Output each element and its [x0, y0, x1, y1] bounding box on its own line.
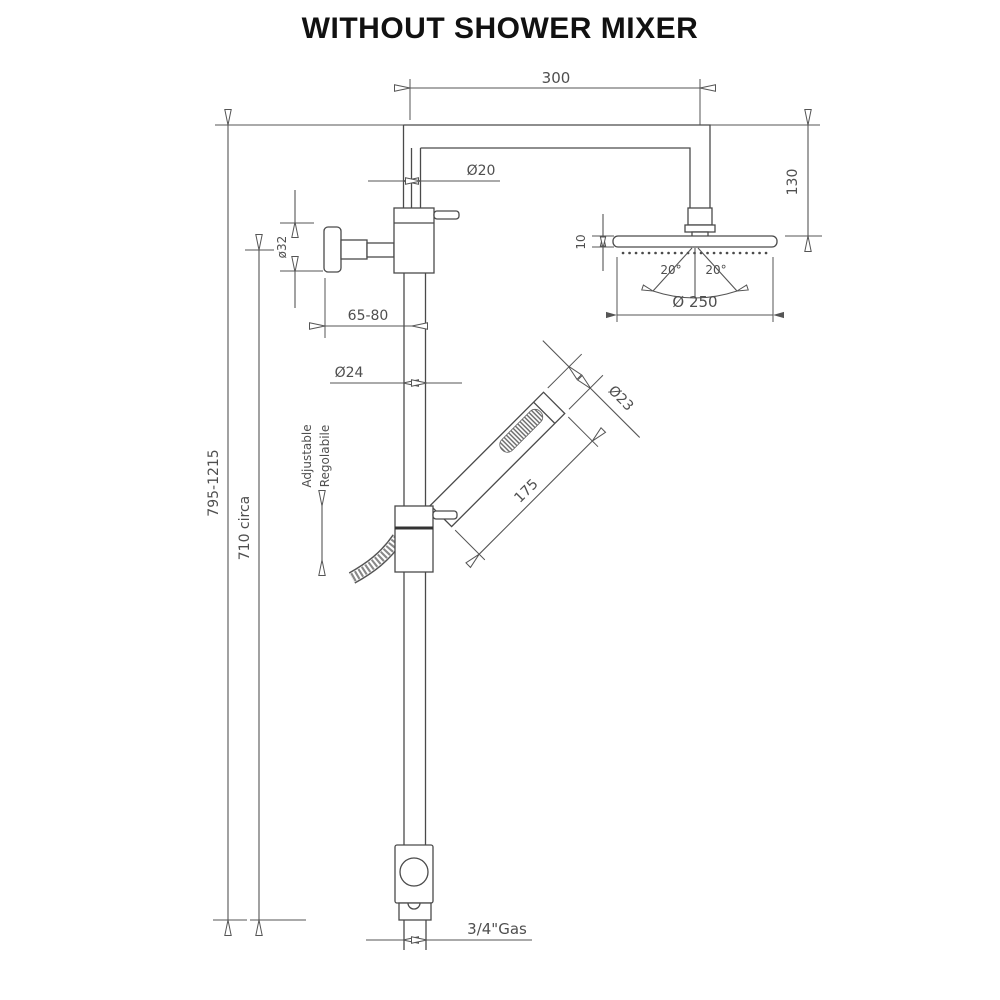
connection-nut: [399, 903, 431, 920]
hand-shower: Ø23 175: [404, 325, 655, 576]
riser-diameter-label: Ø20: [467, 163, 496, 179]
dim-riser-diameter: Ø20: [368, 163, 500, 181]
slide-bracket: [395, 506, 457, 572]
dim-head-drop: 130: [785, 125, 822, 236]
spray-angle-right-label: 20°: [705, 263, 726, 277]
dim-head-thickness: 10: [574, 214, 614, 271]
dim-handset-diameter: Ø23: [522, 325, 656, 459]
dim-rail-height: 710 circa: [237, 250, 306, 920]
technical-drawing-page: WITHOUT SHOWER MIXER: [0, 0, 1000, 1000]
shower-arm: [404, 125, 711, 210]
diverter-lever: [434, 211, 459, 219]
wall-distance-label: 65-80: [348, 308, 389, 324]
gas-connection-label: 3/4"Gas: [467, 920, 527, 938]
arm-length-label: 300: [542, 69, 571, 87]
total-height-label: 795-1215: [206, 449, 222, 516]
shutoff-valve: [395, 845, 433, 920]
shower-column-diagram: 20° 20°: [0, 0, 1000, 1000]
dim-gas-connection: 3/4"Gas: [366, 920, 532, 940]
wall-bracket: [324, 227, 394, 272]
dim-rail-diameter: Ø24: [330, 365, 462, 383]
shower-hose: [352, 538, 398, 578]
riser-pipe: [404, 125, 421, 208]
dim-arm-length: 300: [410, 69, 700, 125]
inlet-pipe: [404, 920, 426, 950]
head-thickness-label: 10: [574, 234, 588, 249]
adjustable-it-label: Regolabile: [318, 425, 332, 488]
handset-diameter-label: Ø23: [605, 383, 637, 415]
rail-height-label: 710 circa: [237, 496, 253, 560]
spray-angle-left-label: 20°: [660, 263, 681, 277]
handset-length-label: 175: [511, 476, 541, 506]
dim-bracket-diameter: ø32: [275, 190, 323, 308]
dim-wall-distance: 65-80: [325, 278, 412, 338]
spray-fan: 20° 20°: [653, 248, 737, 298]
bracket-diameter-label: ø32: [275, 236, 289, 259]
supply-housing: [394, 208, 459, 273]
head-drop-label: 130: [785, 169, 801, 196]
rail-diameter-label: Ø24: [335, 365, 364, 381]
adjustable-en-label: Adjustable: [300, 424, 314, 487]
arm-fitting: [685, 208, 715, 238]
adjustable-note: Adjustable Regolabile: [300, 424, 332, 560]
head-diameter-label: Ø 250: [672, 293, 717, 311]
shower-head-plate: [613, 236, 777, 247]
slide-bracket-pin: [433, 511, 457, 519]
